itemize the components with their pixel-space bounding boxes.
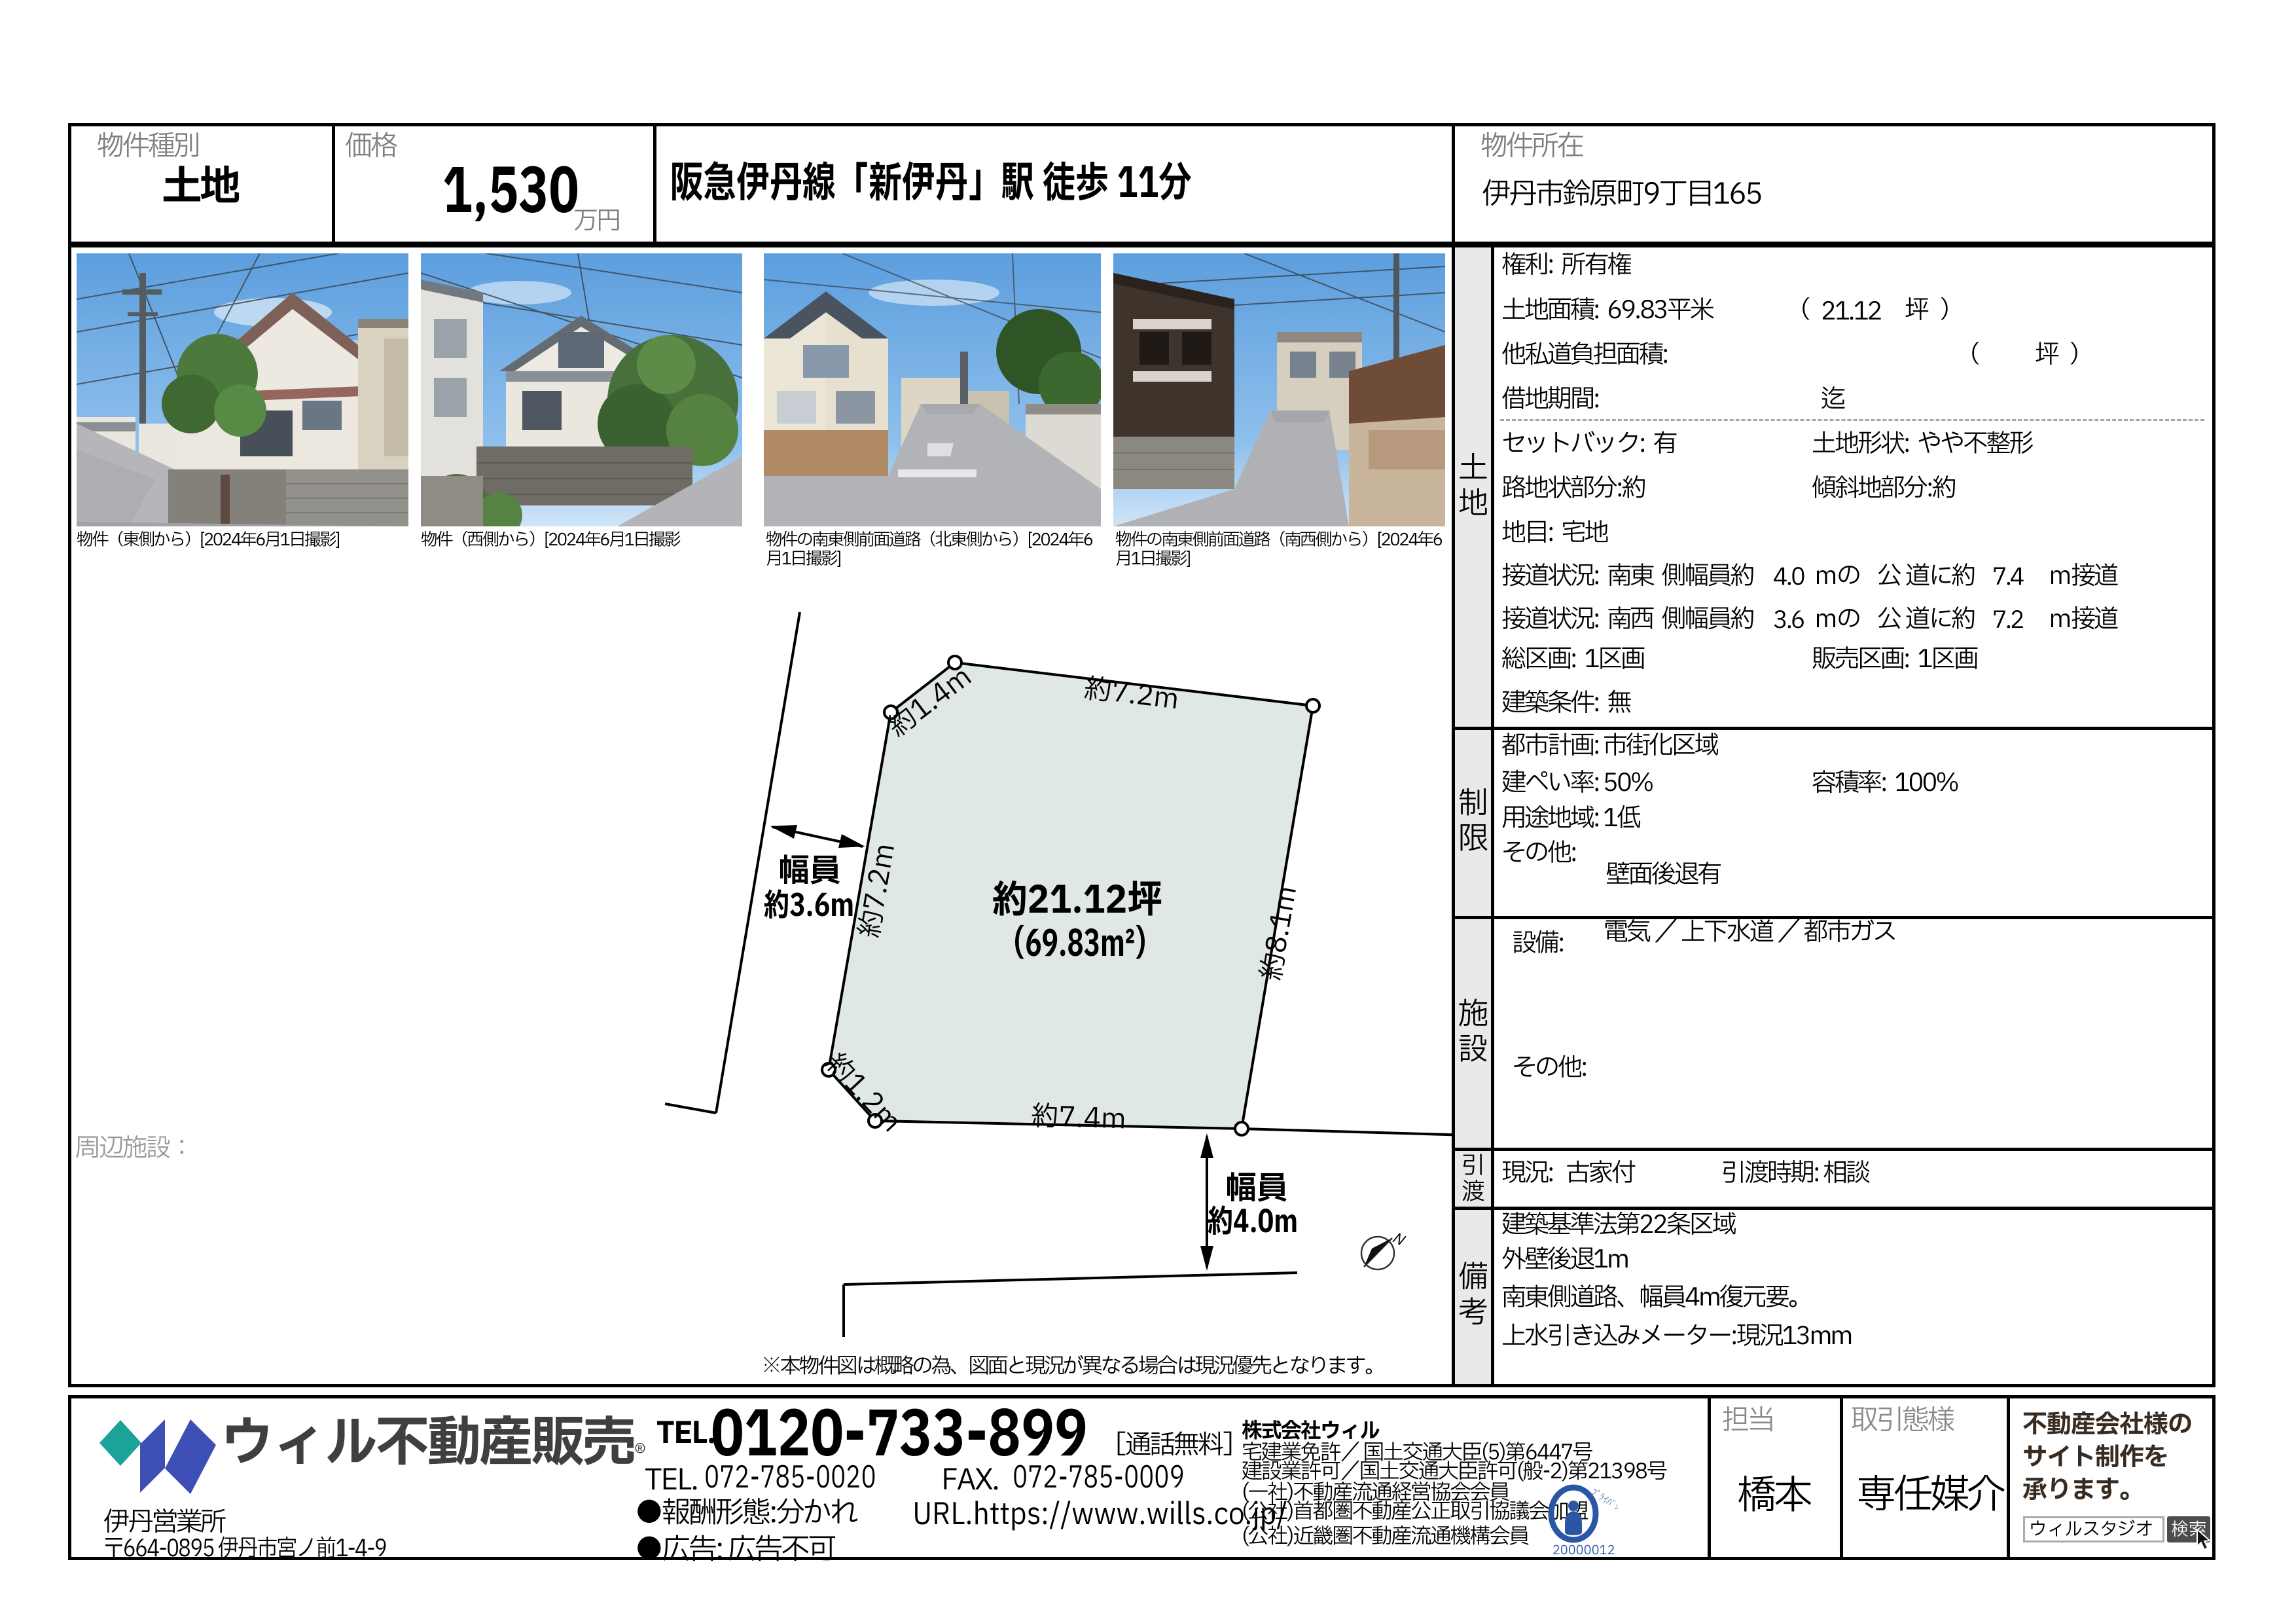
svg-text:約4.0m: 約4.0m — [1208, 1199, 1298, 1247]
svg-text:約3.6m: 約3.6m — [764, 883, 854, 930]
svg-text:20000012: 20000012 — [1552, 1542, 1615, 1559]
svg-text:約7.4m: 約7.4m — [1030, 1096, 1126, 1140]
svg-text:（69.83m²）: （69.83m²） — [999, 917, 1161, 972]
